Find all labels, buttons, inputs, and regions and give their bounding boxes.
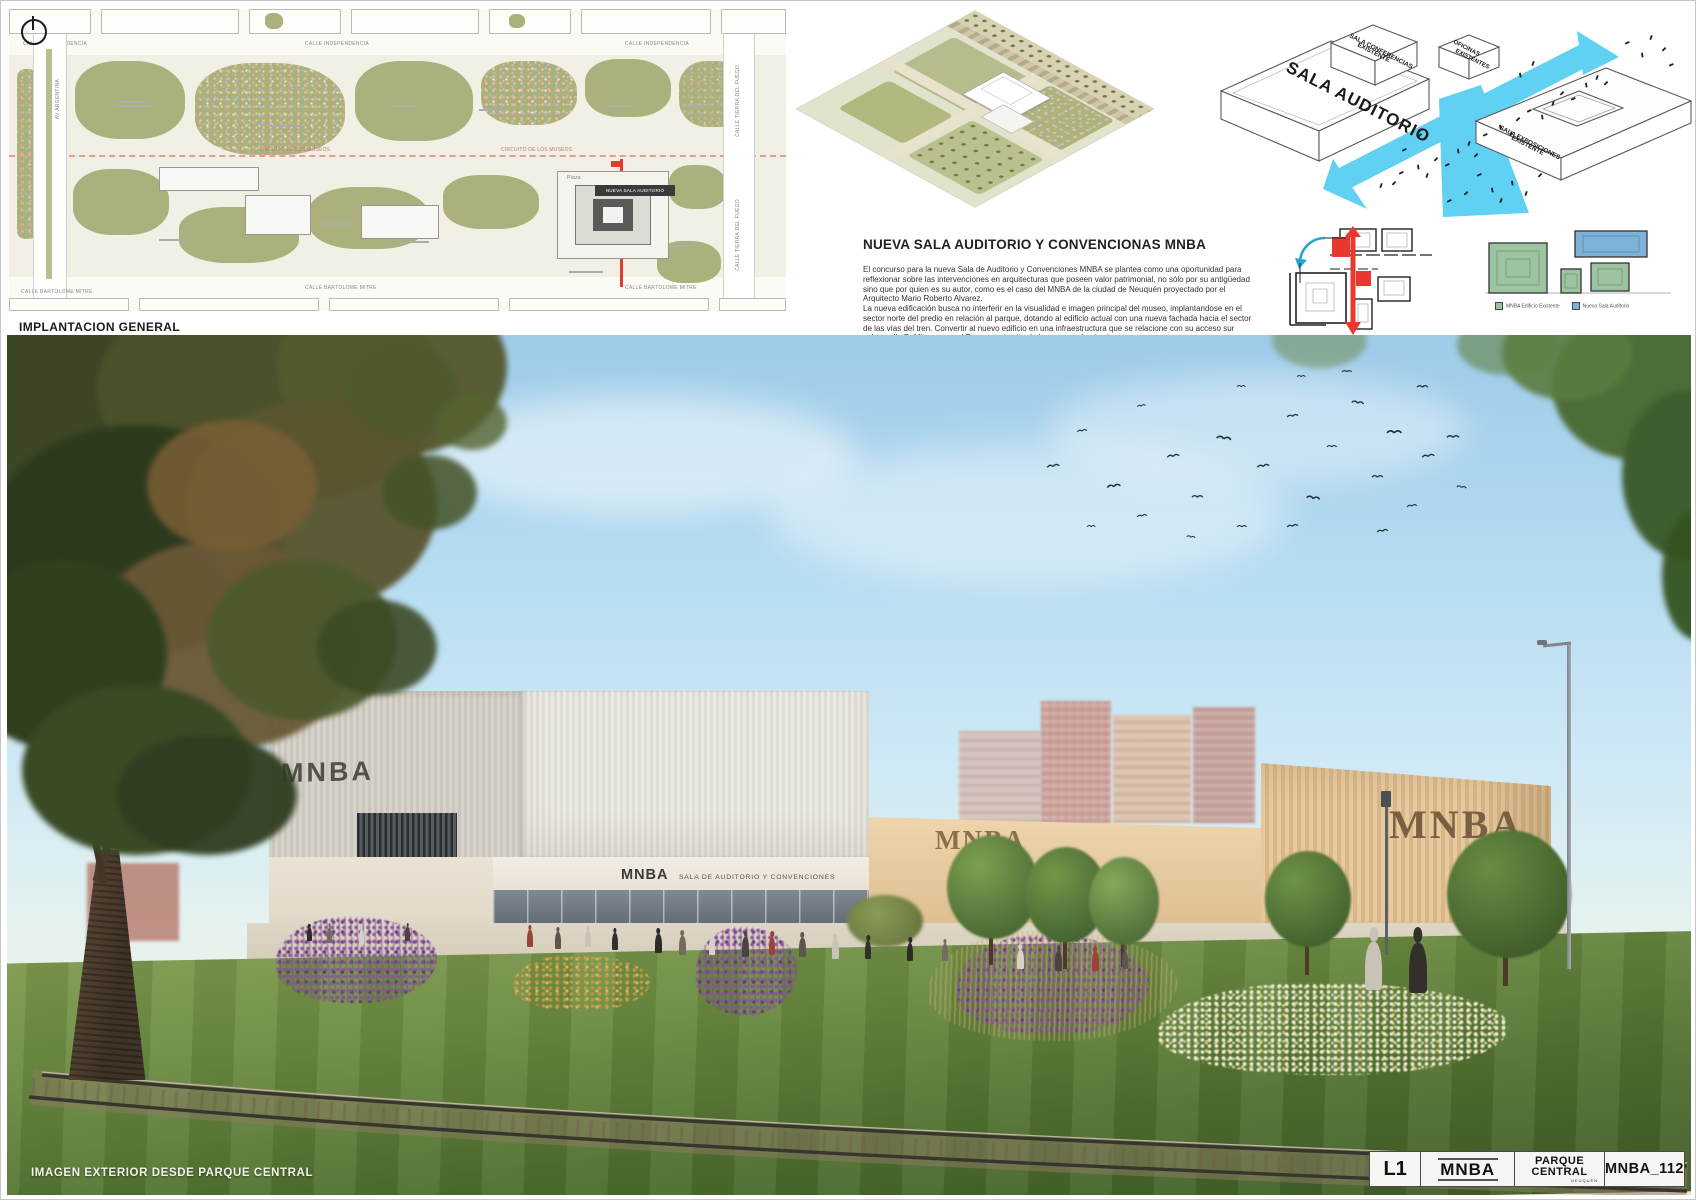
street-label: CALLE TIERRA DEL FUEGO: [735, 65, 741, 137]
person-silhouette: [742, 937, 749, 957]
north-arrow-icon: [21, 19, 47, 45]
project-title: NUEVA SALA AUDITORIO Y CONVENCIONAS MNBA: [863, 237, 1255, 252]
person-silhouette: [1055, 951, 1062, 971]
person-silhouette: [555, 932, 561, 949]
parque-central-logo: PARQUE CENTRAL NEUQUÉN: [1515, 1152, 1605, 1186]
street-label: CALLE INDEPENDENCIA: [625, 41, 689, 47]
exterior-render: MNBA MNBA SALA DE AUDITORIO Y CONVENCION…: [7, 335, 1691, 1195]
person-silhouette: [1365, 942, 1382, 990]
person-silhouette: [655, 934, 662, 953]
building-footprint: [361, 205, 439, 239]
vinculos-urbanos-diagram: [1286, 225, 1436, 337]
title-block: L1 MNBA PARQUE CENTRAL NEUQUÉN MNBA_112: [1369, 1151, 1685, 1187]
street-label: CALLE INDEPENDENCIA: [305, 41, 369, 47]
relaciones-formales-diagram: [1483, 229, 1673, 297]
presentation-board: CALLE INDEPENDENCIA CALLE INDEPENDENCIA …: [0, 0, 1696, 1200]
street-label: CALLE TIERRA DEL FUEGO: [735, 199, 741, 271]
street-label: AV ARGENTINA: [55, 79, 61, 119]
building-footprint: [159, 167, 259, 191]
circuit-label: CIRCUITO DE LOS MUSEOS: [501, 147, 572, 153]
person-silhouette: [405, 927, 410, 941]
green-swatch: [1495, 302, 1503, 310]
person-silhouette: [1017, 950, 1024, 969]
plaza-label: Plaza: [567, 175, 581, 181]
legend-nueva: Nueva Sala Auditorio: [1572, 302, 1630, 310]
person-silhouette: [679, 936, 686, 955]
building-footprint: [245, 195, 311, 235]
street-label: CALLE BARTOLOME MITRE: [21, 289, 93, 295]
person-silhouette: [307, 928, 312, 941]
circuit-label: CIRCUITO DE LOS MUSEOS: [259, 147, 330, 153]
person-silhouette: [612, 933, 618, 950]
mnba-logo: MNBA: [1421, 1152, 1515, 1186]
shrubs: [847, 895, 923, 947]
person-silhouette: [942, 944, 948, 961]
person-silhouette: [585, 931, 591, 947]
aerial-axonometric: [801, 15, 1153, 211]
isometric-diagram: SALA AUDITORIO SALA CONFERENCIAS EXISTEN…: [1181, 13, 1696, 221]
site-plan: CALLE INDEPENDENCIA CALLE INDEPENDENCIA …: [9, 9, 786, 311]
person-silhouette: [1092, 952, 1099, 971]
board-code: MNBA_112: [1605, 1152, 1684, 1186]
tree-trunk: [47, 850, 167, 1080]
museum-circuit-line: [9, 155, 786, 157]
person-silhouette: [527, 930, 533, 947]
light-pole: [1567, 643, 1571, 969]
legend-existente: MNBA Edificio Existente: [1495, 302, 1560, 310]
new-building-label: NUEVA SALA AUDITORIO: [595, 185, 675, 196]
formales-legend: MNBA Edificio Existente Nueva Sala Audit…: [1495, 302, 1629, 310]
render-caption: IMAGEN EXTERIOR DESDE PARQUE CENTRAL: [31, 1167, 313, 1179]
person-silhouette: [1409, 943, 1427, 993]
sheet-number: L1: [1370, 1152, 1421, 1186]
signal-pole: [1385, 805, 1388, 955]
person-silhouette: [832, 940, 839, 959]
description-paragraph: El concurso para la nueva Sala de Audito…: [863, 265, 1255, 304]
site-plan-title: IMPLANTACION GENERAL: [19, 320, 180, 334]
foreground-tree: [7, 335, 567, 1145]
blue-swatch: [1572, 302, 1580, 310]
street-label: CALLE BARTOLOME MITRE: [305, 285, 377, 291]
street-label: CALLE BARTOLOME MITRE: [625, 285, 697, 291]
person-silhouette: [799, 938, 806, 957]
